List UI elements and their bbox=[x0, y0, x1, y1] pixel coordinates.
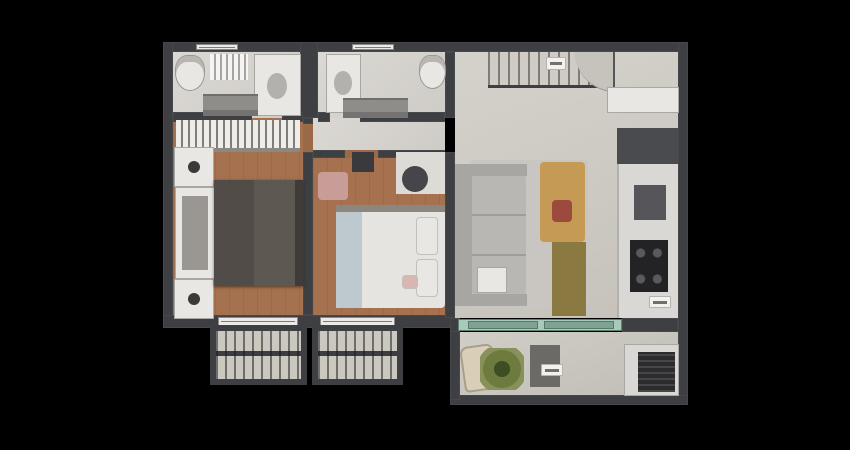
desk-chair bbox=[402, 166, 428, 192]
pillow bbox=[416, 259, 438, 297]
bathroom-1-window bbox=[196, 44, 238, 50]
tv-stand bbox=[352, 152, 374, 172]
barbecue-grill bbox=[638, 352, 675, 392]
balcony-label-chip bbox=[541, 364, 563, 376]
bathroom-1-vanity bbox=[255, 55, 300, 115]
refrigerator bbox=[617, 128, 678, 164]
wall-balcony-left bbox=[450, 330, 460, 400]
wall-left bbox=[163, 42, 173, 328]
nightstand-bottom bbox=[175, 280, 213, 318]
entry-cabinet bbox=[608, 88, 678, 112]
potted-plant bbox=[480, 348, 524, 390]
balcony-sliding-glass-door bbox=[458, 319, 622, 331]
apartment-plan bbox=[163, 42, 688, 405]
window-pane bbox=[355, 47, 391, 48]
lamp bbox=[188, 161, 200, 173]
bathroom-2-toilet bbox=[420, 56, 445, 88]
lamp bbox=[188, 293, 200, 305]
dresser bbox=[318, 172, 348, 200]
sheet-fold bbox=[336, 212, 362, 308]
kitchen-label-chip bbox=[649, 296, 671, 308]
floor-plan-image bbox=[0, 0, 850, 450]
window-box-2 bbox=[312, 325, 403, 385]
bathroom-1-shelf bbox=[210, 54, 248, 80]
window-pane bbox=[221, 321, 295, 322]
sofa-armrest-top bbox=[455, 164, 527, 176]
bathroom-2-shower bbox=[343, 98, 408, 118]
window-pane bbox=[323, 321, 392, 322]
louver-rail bbox=[216, 351, 301, 356]
bathroom-1-shower bbox=[203, 94, 258, 116]
hallway-floor bbox=[313, 118, 445, 150]
wall-right bbox=[678, 42, 688, 405]
wall-top bbox=[163, 42, 688, 52]
bed-throw bbox=[214, 180, 254, 286]
label-text-smudge bbox=[550, 62, 562, 65]
wall-bathroom-2-bottom bbox=[318, 112, 330, 122]
entry-label-chip bbox=[546, 57, 566, 70]
wall-balcony-divider bbox=[622, 318, 678, 332]
bed-headboard bbox=[176, 188, 214, 278]
wall-bedroom-2-top bbox=[313, 150, 345, 158]
sofa-back bbox=[455, 168, 472, 302]
blanket-edge bbox=[336, 205, 445, 212]
label-text-smudge bbox=[653, 301, 667, 304]
table-centerpiece bbox=[552, 200, 572, 222]
glass-panel bbox=[544, 321, 614, 329]
bed-foot-bench bbox=[295, 180, 303, 286]
wall-between-bathrooms bbox=[300, 42, 318, 118]
wall-bedrooms-divider-b bbox=[303, 152, 313, 315]
sideboard bbox=[552, 242, 586, 316]
kitchen-sink bbox=[634, 185, 666, 220]
bathroom-1-toilet bbox=[176, 56, 204, 90]
label-text-smudge bbox=[545, 369, 559, 372]
wall-bedroom2-living-b bbox=[445, 152, 455, 318]
single-bed bbox=[336, 205, 445, 308]
sofa-armrest-bottom bbox=[455, 294, 527, 306]
bathroom-2-window bbox=[352, 44, 394, 50]
louver-rail bbox=[318, 351, 397, 356]
cooktop bbox=[630, 240, 668, 292]
double-bed bbox=[214, 180, 303, 286]
window-pane bbox=[199, 47, 235, 48]
dining-table bbox=[540, 162, 585, 242]
wall-bedrooms-divider bbox=[303, 118, 313, 124]
bathroom-2-sink bbox=[334, 71, 352, 95]
glass-panel bbox=[468, 321, 538, 329]
headboard-panel bbox=[182, 196, 208, 270]
bathroom-1-sink bbox=[267, 73, 287, 99]
wall-balcony-bottom bbox=[450, 395, 688, 405]
master-bedroom-door-opening bbox=[303, 124, 313, 152]
coffee-table bbox=[478, 268, 506, 292]
accent-pillow bbox=[402, 275, 418, 289]
wall-bedroom2-living bbox=[445, 52, 455, 118]
pillow bbox=[416, 217, 438, 255]
nightstand-top bbox=[175, 148, 213, 186]
window-box-1 bbox=[210, 325, 307, 385]
